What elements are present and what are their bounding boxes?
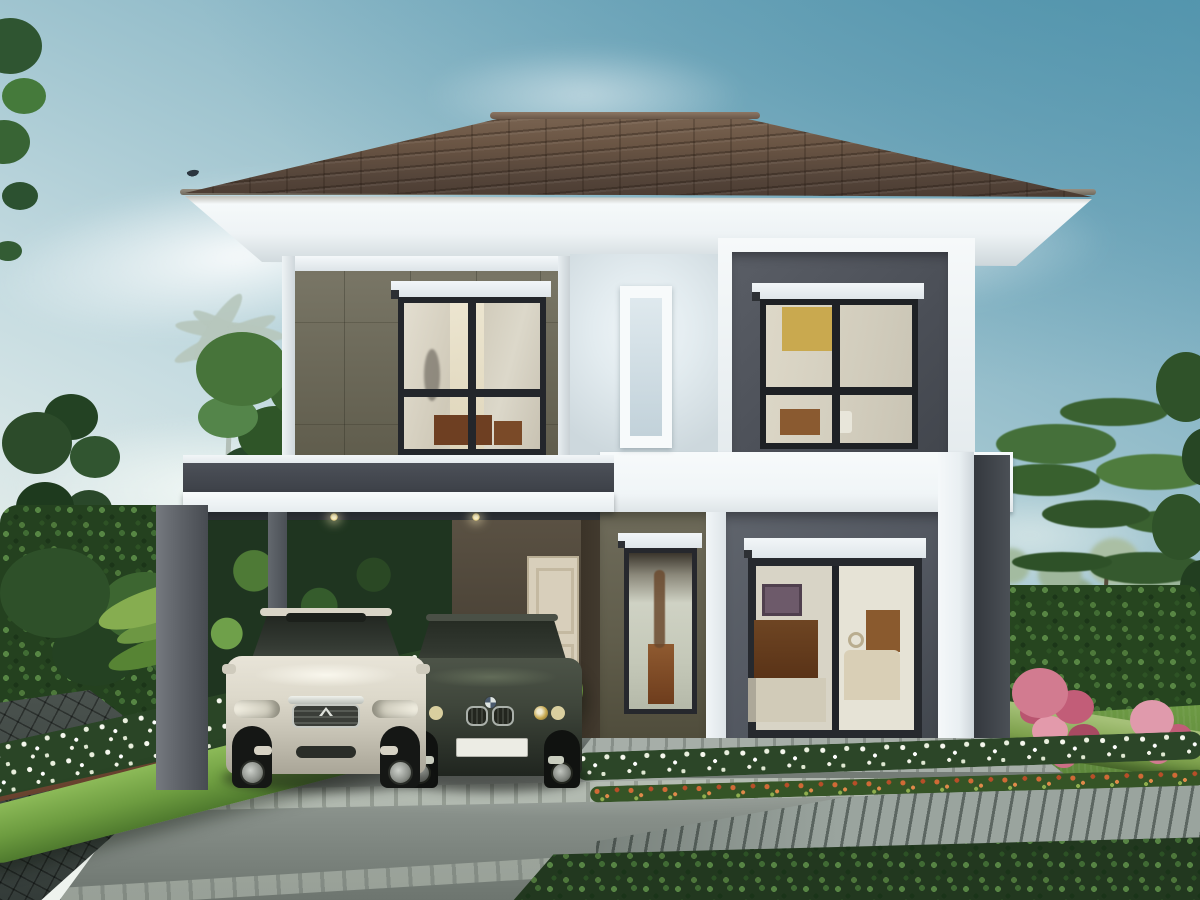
headlight	[534, 706, 548, 720]
white-corner-trim	[282, 256, 295, 470]
bumper-intake	[296, 746, 356, 758]
display-window	[624, 548, 697, 714]
roller-shade-cap	[752, 292, 760, 301]
wheel-rim	[551, 762, 573, 784]
tree-cluster-left	[196, 332, 288, 406]
car-hood-highlight	[408, 664, 574, 690]
roller-shade-cap	[744, 550, 752, 558]
glass-reflection	[629, 553, 692, 709]
window-rail	[404, 389, 540, 397]
dark-sedan	[400, 614, 582, 790]
white-sedan	[226, 608, 426, 792]
wheel-rim	[388, 760, 413, 785]
slab-top-trim	[183, 455, 614, 463]
sliding-glass-door	[748, 558, 922, 738]
car-hood-highlight	[236, 660, 416, 690]
panel-seam	[344, 271, 345, 470]
upper-right-window	[760, 299, 918, 449]
window-mullion	[468, 303, 476, 449]
kidney-grille	[466, 706, 488, 726]
downlight	[472, 513, 480, 521]
wheel-rim	[240, 760, 265, 785]
pink-flower-bush	[1012, 668, 1068, 718]
wheel	[232, 726, 272, 788]
carport-pillar	[156, 505, 208, 790]
upper-left-window	[398, 297, 546, 455]
car-badge	[484, 696, 497, 709]
white-trim-band	[282, 256, 570, 271]
glass-reflection	[756, 566, 834, 730]
fog-light	[548, 756, 564, 764]
roller-shade-box	[618, 533, 702, 548]
roof-ridge	[490, 112, 760, 119]
window-rail	[766, 387, 912, 395]
downlight	[330, 513, 338, 521]
roller-shade-box	[391, 281, 551, 297]
wheel	[380, 726, 420, 788]
headlight	[234, 700, 280, 718]
chrome-bar	[288, 696, 364, 704]
glass-reflection	[838, 566, 914, 730]
carport-roof-slab	[183, 455, 614, 512]
shaded-side-wall	[974, 455, 1010, 748]
license-plate	[456, 738, 528, 757]
fog-light	[254, 746, 272, 755]
fog-light	[380, 746, 398, 755]
slab-white-stripe	[183, 492, 614, 512]
window-mullion	[832, 305, 840, 443]
sunroof	[286, 613, 366, 622]
side-mirror	[222, 664, 236, 674]
kidney-grille	[492, 706, 514, 726]
house-exterior-scene	[0, 0, 1200, 900]
roller-shade-box	[752, 283, 924, 299]
tree-right	[996, 424, 1116, 464]
narrow-window-glass	[630, 298, 662, 436]
tree-cluster-left	[2, 412, 72, 474]
roller-shade-box	[744, 538, 926, 558]
sliding-door-mullion	[832, 566, 839, 730]
side-mirror	[416, 664, 430, 674]
white-corner-trim	[558, 256, 570, 470]
slab-fascia-dark	[183, 463, 614, 492]
headlight	[372, 700, 418, 718]
white-corner-pillar	[938, 452, 974, 750]
white-vertical-trim	[706, 512, 726, 748]
garden-foliage-left	[0, 548, 110, 638]
roller-shade-cap	[618, 541, 625, 548]
car-roof	[426, 614, 558, 621]
